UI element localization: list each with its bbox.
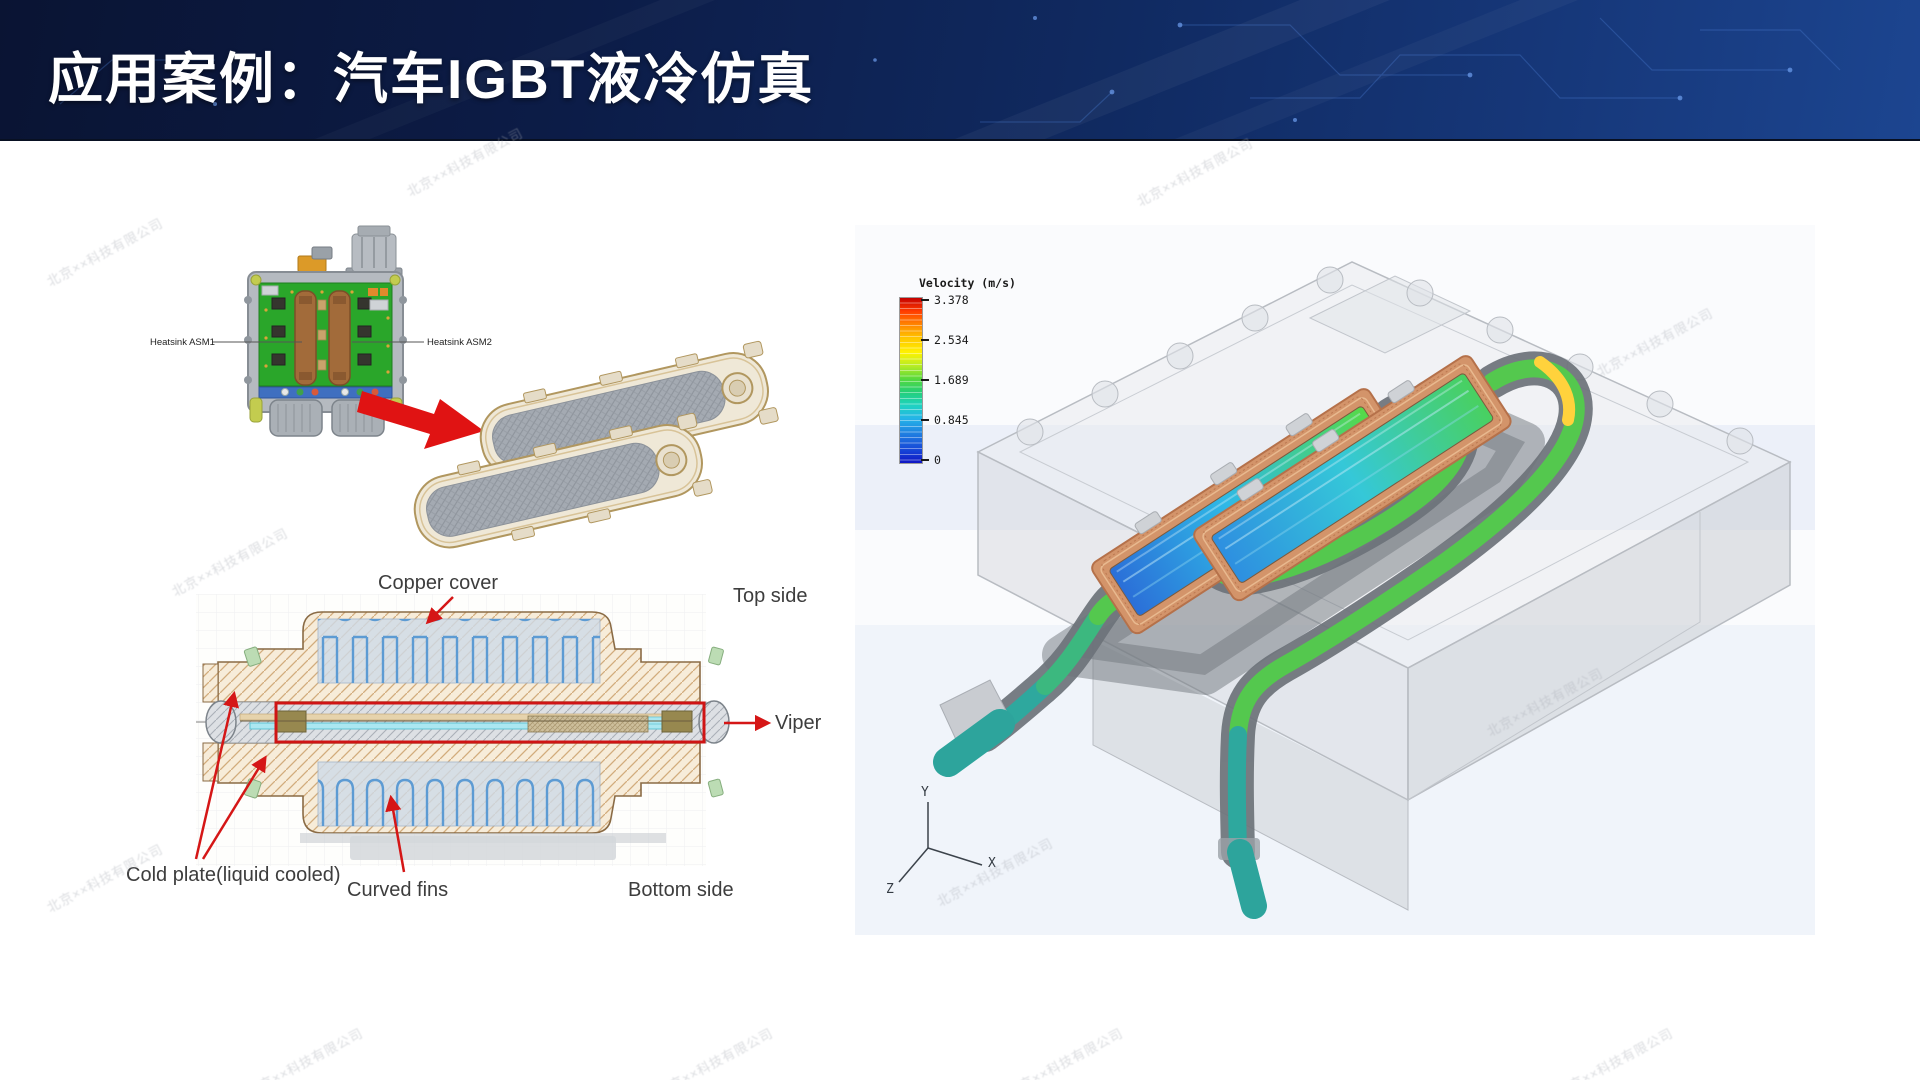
legend-tick-2: 2.534 (934, 333, 969, 347)
velocity-colorbar (899, 297, 923, 464)
legend-title: Velocity (m/s) (919, 276, 1016, 290)
legend-tick-3: 1.689 (934, 373, 969, 387)
cold-plate-label: Cold plate(liquid cooled) (126, 864, 341, 887)
copper-cover-label: Copper cover (378, 572, 498, 595)
colorbar-tick (921, 339, 929, 341)
cross-section-diagram (196, 594, 729, 866)
curved-fins-label: Curved fins (347, 879, 448, 902)
outlet-tube (1240, 852, 1254, 906)
legend-tick-max: 3.378 (934, 293, 969, 307)
colorbar-tick (921, 459, 929, 461)
curved-fins-top (318, 619, 600, 683)
bottom-side-label: Bottom side (628, 879, 734, 902)
colorbar-tick (921, 299, 929, 301)
legend-tick-min: 0 (934, 453, 941, 467)
axis-y-label: Y (921, 785, 929, 800)
heatsink-asm2-label: Heatsink ASM2 (427, 337, 492, 348)
curved-fins-bottom (318, 762, 600, 826)
colorbar-tick (921, 379, 929, 381)
heatsink-asm1-label: Heatsink ASM1 (150, 337, 215, 348)
slide: 应用案例：汽车IGBT液冷仿真 (0, 0, 1920, 1080)
viper-label: Viper (775, 712, 821, 735)
axis-z-label: Z (886, 882, 894, 897)
cold-plate-illustration (406, 339, 779, 561)
colorbar-tick (921, 419, 929, 421)
legend-tick-4: 0.845 (934, 413, 969, 427)
top-side-label: Top side (733, 585, 808, 608)
